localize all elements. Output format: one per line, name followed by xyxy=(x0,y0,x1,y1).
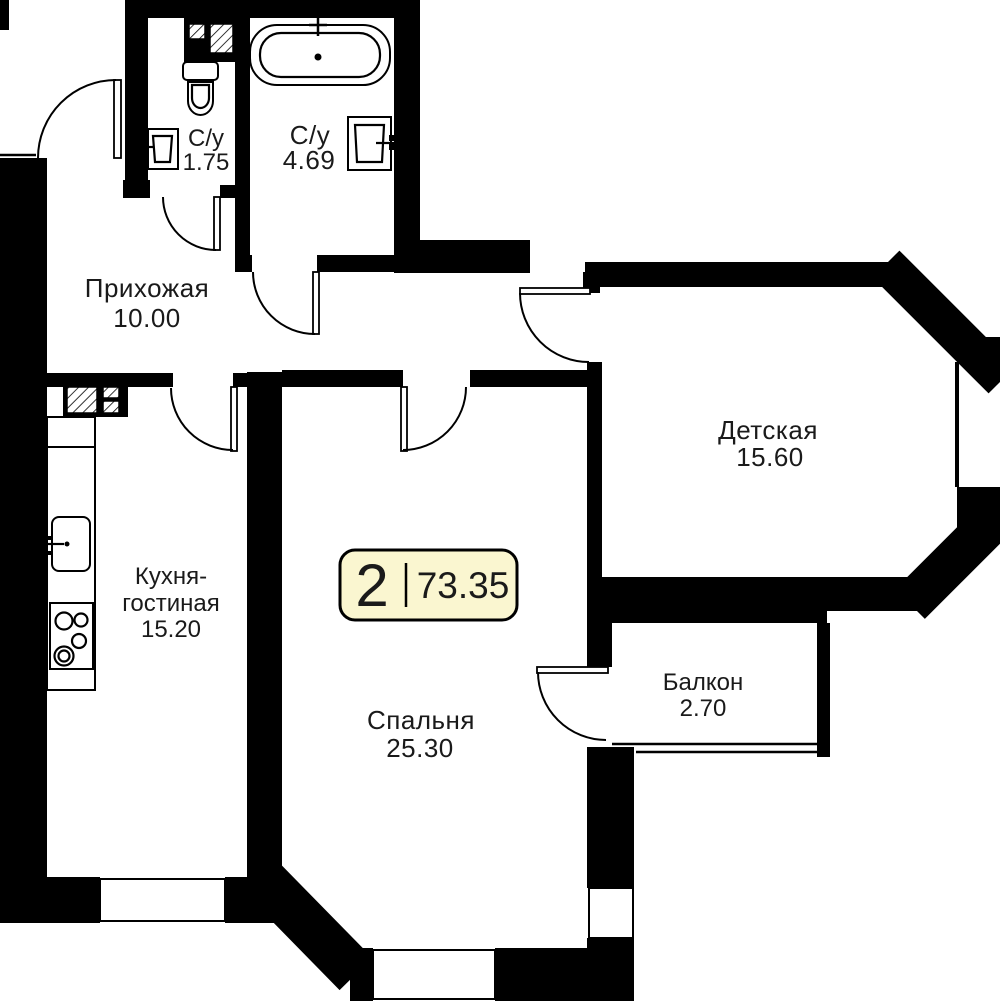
balcony-label: Балкон xyxy=(663,669,743,696)
room-labels: С/у 1.75 С/у 4.69 Прихожая 10.00 Кухня- … xyxy=(85,120,818,763)
apartment-type-badge: 2 73.35 xyxy=(340,550,517,620)
balcony-door xyxy=(537,667,608,740)
kids-room-label: Детская xyxy=(718,415,818,445)
kitchen-area: 15.20 xyxy=(141,616,201,643)
bathroom-large-area: 4.69 xyxy=(283,145,336,175)
bedroom-bottom-window xyxy=(373,950,495,999)
balcony-area: 2.70 xyxy=(680,695,727,722)
bathroom-small-label: С/у xyxy=(188,125,224,152)
stove-icon xyxy=(50,603,93,669)
kitchen-ventilation-shaft-icon xyxy=(63,383,128,417)
toilet-icon xyxy=(183,62,218,115)
badge-total-area: 73.35 xyxy=(417,565,510,606)
bedroom-door xyxy=(401,387,466,451)
bedroom-label: Спальня xyxy=(367,705,475,735)
kitchen-door xyxy=(171,387,237,451)
bathroom-small-door xyxy=(163,197,220,250)
kitchen-sink-icon xyxy=(48,517,90,571)
bedroom-side-window xyxy=(589,888,633,938)
hallway-label: Прихожая xyxy=(85,273,209,303)
bedroom-area: 25.30 xyxy=(386,733,454,763)
ventilation-shaft-icon xyxy=(184,18,237,62)
kids-room-area: 15.60 xyxy=(736,442,804,472)
kitchen-window xyxy=(100,879,225,921)
floor-plan-drawing: С/у 1.75 С/у 4.69 Прихожая 10.00 Кухня- … xyxy=(0,0,1000,1001)
bathroom-large-sink-icon xyxy=(348,117,394,170)
kitchen-label-line1: Кухня- xyxy=(135,563,207,590)
kids-room-door xyxy=(520,288,590,362)
floor-plan: С/у 1.75 С/у 4.69 Прихожая 10.00 Кухня- … xyxy=(0,0,1000,1001)
bathroom-small-area: 1.75 xyxy=(183,149,230,176)
kids-room-window xyxy=(955,362,959,487)
kitchen-label-line2: гостиная xyxy=(122,590,220,617)
entrance-door xyxy=(38,80,121,158)
hallway-area: 10.00 xyxy=(113,303,181,333)
bathroom-large-door xyxy=(253,272,319,334)
badge-rooms-count: 2 xyxy=(355,552,388,619)
